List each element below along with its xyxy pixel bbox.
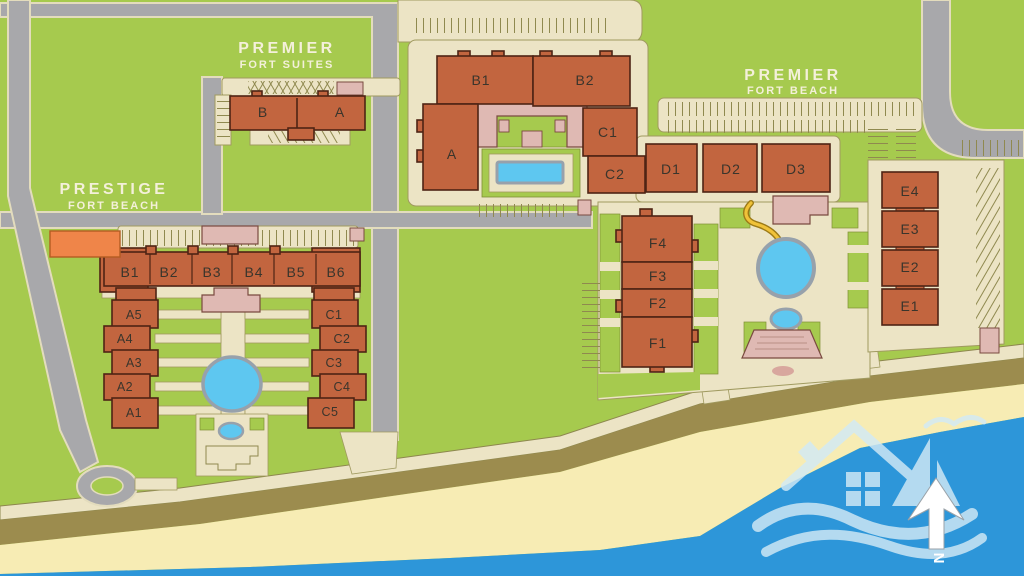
beach-access-pavilion xyxy=(980,328,999,353)
colonnade-kiosk xyxy=(499,120,509,132)
label-p-c5: C5 xyxy=(322,405,339,419)
round-pool xyxy=(758,239,814,297)
label-p-c3: C3 xyxy=(326,356,343,370)
label-e4: E4 xyxy=(900,183,919,199)
label-p-b3: B3 xyxy=(202,264,221,280)
label-a: A xyxy=(447,146,457,162)
fort-suites-drive-pavilion xyxy=(337,82,363,95)
road-end-marker xyxy=(578,200,591,215)
fort-suites-subtitle: FORT SUITES xyxy=(240,59,335,71)
prestige-title: PRESTIGE xyxy=(60,181,169,198)
label-b1: B1 xyxy=(471,72,490,88)
prestige-lot-kiosk xyxy=(350,228,364,241)
label-p-b6: B6 xyxy=(326,264,345,280)
prestige-main-pool xyxy=(203,357,261,411)
label-c2: C2 xyxy=(605,166,625,182)
prestige-lot-pavilion xyxy=(202,226,258,244)
fort-suites-title: PREMIER xyxy=(238,40,335,57)
bldg-suites-center-stub xyxy=(288,128,314,140)
label-p-b4: B4 xyxy=(244,264,263,280)
oval-pool xyxy=(771,309,801,329)
label-p-a1: A1 xyxy=(126,406,142,420)
label-p-b5: B5 xyxy=(286,264,305,280)
label-d3: D3 xyxy=(786,161,806,177)
label-suites-a: A xyxy=(335,104,345,120)
label-p-a3: A3 xyxy=(126,356,142,370)
label-p-a5: A5 xyxy=(126,308,142,322)
label-p-a2: A2 xyxy=(117,380,133,394)
label-f2: F2 xyxy=(649,295,667,311)
label-p-c4: C4 xyxy=(334,380,351,394)
colonnade-kiosk xyxy=(555,120,565,132)
label-suites-b: B xyxy=(258,104,268,120)
label-p-a4: A4 xyxy=(117,332,133,346)
label-e1: E1 xyxy=(900,298,919,314)
label-f1: F1 xyxy=(649,335,667,351)
label-p-c1: C1 xyxy=(326,308,343,322)
resort-site-map: N PREMIER FORT SUITES PREMIER FORT BEACH… xyxy=(0,0,1024,576)
label-d1: D1 xyxy=(661,161,681,177)
turnaround-loop-center xyxy=(91,477,123,495)
amphitheater-stage xyxy=(742,330,822,358)
terrace-lawn xyxy=(200,418,214,430)
label-p-b1: B1 xyxy=(120,264,139,280)
label-e3: E3 xyxy=(900,221,919,237)
prestige-kids-pool xyxy=(219,423,243,439)
label-p-b2: B2 xyxy=(159,264,178,280)
label-f3: F3 xyxy=(649,268,667,284)
label-d2: D2 xyxy=(721,161,741,177)
label-c1: C1 xyxy=(598,124,618,140)
terrace-lawn xyxy=(250,418,264,430)
amphitheater-lawn-oval xyxy=(772,366,794,376)
label-b2: B2 xyxy=(575,72,594,88)
premier-beach-subtitle: FORT BEACH xyxy=(747,85,839,97)
compass-n-label: N xyxy=(930,553,947,564)
colonnade-stage xyxy=(522,131,542,147)
label-p-c2: C2 xyxy=(334,332,351,346)
prestige-subtitle: FORT BEACH xyxy=(68,200,160,212)
premier-beach-title: PREMIER xyxy=(744,67,841,84)
orange-building xyxy=(50,231,120,257)
label-e2: E2 xyxy=(900,259,919,275)
site-map-canvas: N PREMIER FORT SUITES PREMIER FORT BEACH… xyxy=(0,0,1024,576)
label-f4: F4 xyxy=(649,235,667,251)
center-rect-pool xyxy=(497,162,563,183)
